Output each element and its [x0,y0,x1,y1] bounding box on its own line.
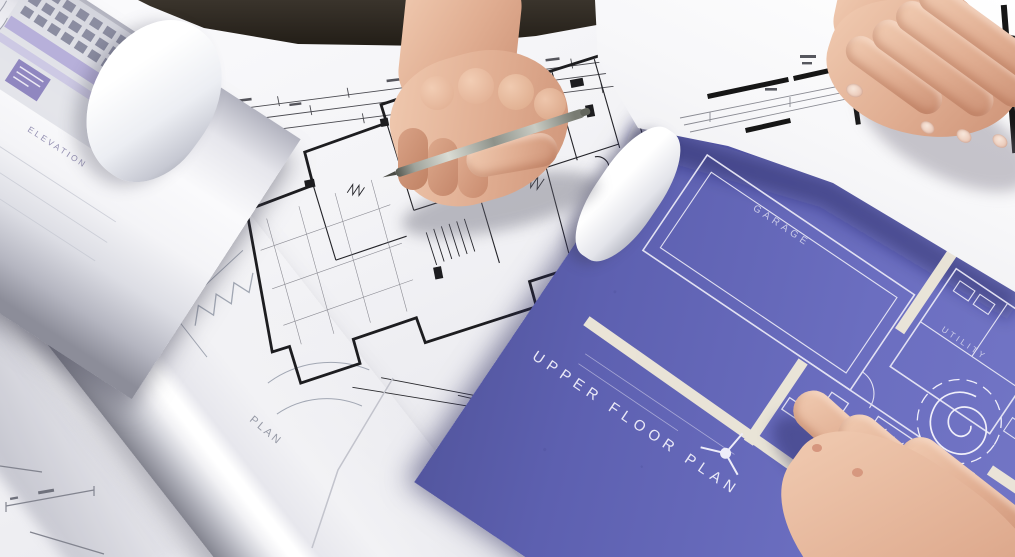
utility-label: UTILITY [940,324,989,362]
blueprint-table-scene: PLAN ELEVATION [0,0,1015,557]
knuckle-spot [812,444,822,452]
knuckle [458,68,494,104]
curled-finger [428,138,458,196]
upper-floor-plan-title: UPPER FLOOR PLAN [529,348,743,500]
knuckle [420,76,454,110]
garage-label: GARAGE [751,203,813,249]
knuckle [498,74,534,110]
knuckle-spot [852,468,863,477]
